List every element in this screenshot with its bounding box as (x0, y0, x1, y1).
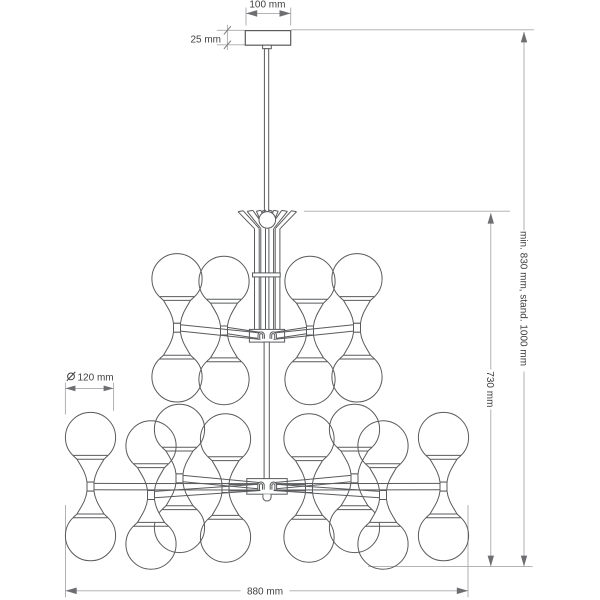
svg-text:25 mm: 25 mm (190, 34, 221, 45)
svg-text:880 mm: 880 mm (247, 586, 283, 597)
svg-text:100 mm: 100 mm (249, 0, 285, 11)
svg-text:120 mm: 120 mm (78, 372, 114, 383)
svg-text:730 mm: 730 mm (484, 371, 495, 407)
svg-text:min. 830 mm, stand. 1000 mm: min. 830 mm, stand. 1000 mm (517, 231, 528, 366)
